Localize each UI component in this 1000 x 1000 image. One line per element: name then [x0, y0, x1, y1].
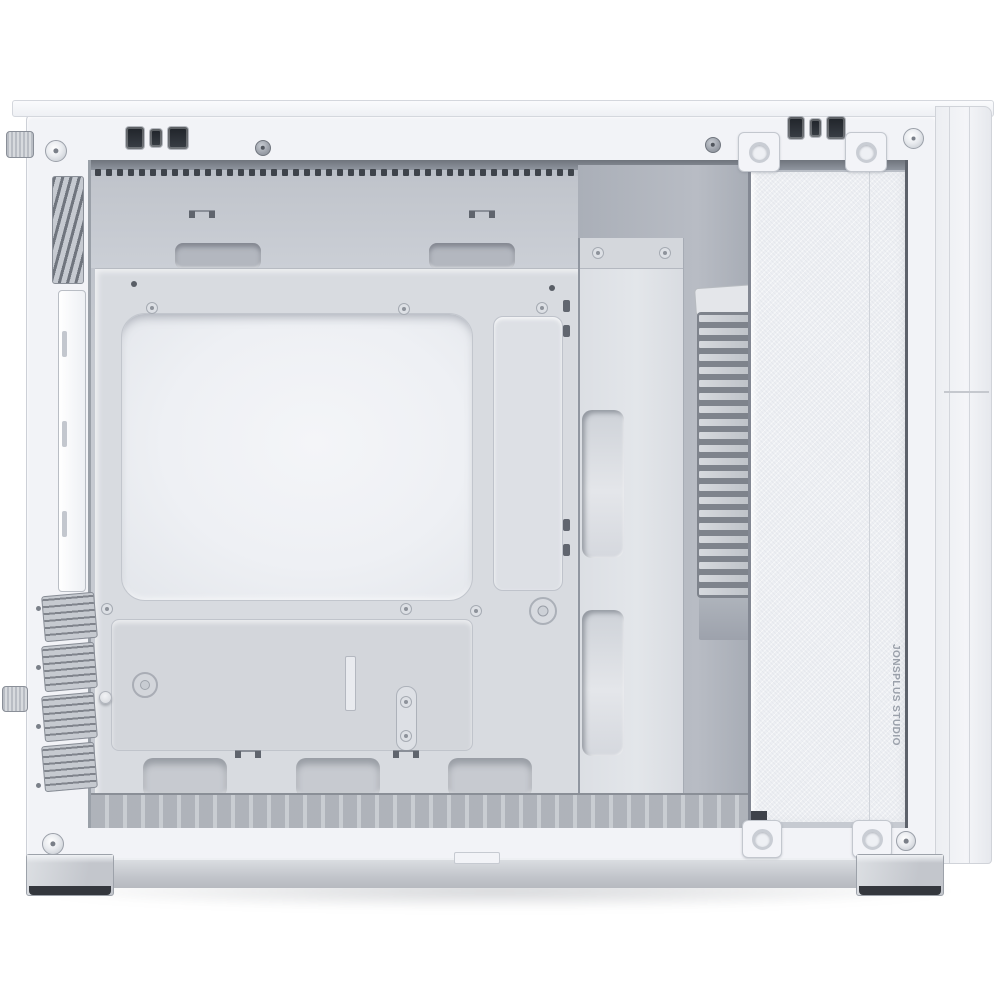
cable-column: [578, 238, 684, 818]
vent-dash: [150, 169, 156, 176]
top-latch-cutouts: [126, 127, 188, 149]
rail-hole: [36, 665, 41, 670]
vent-dash: [227, 169, 233, 176]
standoff-screw: [146, 302, 158, 314]
vent-dash: [304, 169, 310, 176]
screw: [255, 140, 271, 156]
vertical-slot: [345, 656, 356, 711]
cable-clip: [393, 750, 419, 760]
rail-hole: [36, 724, 41, 729]
corner-screw: [896, 831, 916, 851]
vent-dash: [557, 169, 563, 176]
vent-dash: [568, 169, 574, 176]
vent-dash: [161, 169, 167, 176]
vent-dash: [117, 169, 123, 176]
rear-thumbscrew: [2, 686, 28, 712]
rivet-dot: [131, 281, 137, 287]
vent-dash: [128, 169, 134, 176]
bottom-notch: [454, 852, 500, 864]
vent-dash: [106, 169, 112, 176]
vent-dash: [381, 169, 387, 176]
top-cutout: [429, 243, 515, 269]
io-bracket: [62, 511, 67, 537]
vent-dash: [249, 169, 255, 176]
screw: [592, 247, 604, 259]
vent-dash: [194, 169, 200, 176]
product-photo: JONSPLUS STUDIO: [0, 0, 1000, 1000]
latch-slot: [150, 129, 162, 147]
latch-slot: [827, 117, 845, 139]
vent-dash: [315, 169, 321, 176]
case-interior: JONSPLUS STUDIO: [88, 160, 908, 828]
rivet-dot: [549, 285, 555, 291]
vent-dash: [238, 169, 244, 176]
vent-dash: [183, 169, 189, 176]
vent-dash: [502, 169, 508, 176]
pci-cover: [41, 592, 98, 642]
vent-dash: [216, 169, 222, 176]
latch-slot: [126, 127, 144, 149]
tie-point: [563, 544, 570, 556]
vent-dash: [546, 169, 552, 176]
psu-mount-panel: [111, 619, 473, 751]
pci-cover: [41, 742, 98, 792]
brand-text: JONSPLUS STUDIO: [883, 644, 901, 802]
screw: [659, 247, 671, 259]
rear-io-cutout: [58, 290, 86, 592]
bottom-cutout: [143, 758, 227, 798]
mounting-tab: [845, 132, 887, 172]
pci-cover: [41, 692, 98, 742]
tab-hole: [752, 829, 773, 850]
tie-point: [563, 325, 570, 337]
latch-slot: [168, 127, 188, 149]
opening-edge: [905, 160, 908, 828]
latch-slot: [788, 117, 804, 139]
rail-hole: [36, 783, 41, 788]
vent-dash: [359, 169, 365, 176]
cable-slot-panel: [493, 316, 563, 591]
cable-pass-upper: [582, 410, 624, 558]
case-foot-left: [26, 854, 114, 896]
rear-exhaust-vent: [52, 176, 84, 284]
screw: [705, 137, 721, 153]
mounting-tab: [742, 820, 782, 858]
front-bezel-edge: [935, 106, 992, 864]
vent-dash: [458, 169, 464, 176]
io-bracket: [62, 331, 67, 357]
motherboard-tray: [95, 268, 578, 813]
bottom-cutout: [448, 758, 532, 798]
vent-dash: [95, 169, 101, 176]
vent-dash: [348, 169, 354, 176]
mounting-tab: [852, 820, 892, 858]
vent-dash: [337, 169, 343, 176]
vent-dash: [447, 169, 453, 176]
vent-dash: [326, 169, 332, 176]
bezel-seam: [949, 107, 950, 863]
latch-slot: [810, 119, 821, 137]
thumbscrew-hole: [529, 597, 557, 625]
standoff-screw: [400, 603, 412, 615]
rivet: [99, 691, 112, 704]
vent-dash: [425, 169, 431, 176]
rear-thumbscrew: [6, 131, 34, 158]
bottom-cutouts: [143, 758, 532, 798]
vent-dash: [282, 169, 288, 176]
bezel-seam: [944, 391, 989, 393]
standoff-screw: [101, 603, 113, 615]
vent-dash: [469, 169, 475, 176]
vent-dash: [172, 169, 178, 176]
vent-dash: [392, 169, 398, 176]
top-panel: [12, 100, 994, 117]
interior-floor: [91, 793, 751, 828]
vent-dash: [436, 169, 442, 176]
tab-hole: [856, 142, 877, 163]
vent-dash: [370, 169, 376, 176]
corner-screw: [903, 128, 924, 149]
cable-clip: [189, 210, 215, 220]
panel-seam: [869, 172, 870, 822]
pci-slot-area: [34, 594, 96, 800]
vent-dash: [535, 169, 541, 176]
vent-dash: [491, 169, 497, 176]
vent-dash: [524, 169, 530, 176]
screw: [400, 696, 412, 708]
vent-dash: [513, 169, 519, 176]
screw: [400, 730, 412, 742]
rail-hole: [36, 606, 41, 611]
bottom-cutout: [296, 758, 380, 798]
tie-point: [563, 519, 570, 531]
tab-hole: [862, 829, 883, 850]
front-panel-column: JONSPLUS STUDIO: [748, 172, 908, 822]
vent-dash: [205, 169, 211, 176]
cable-clip: [469, 210, 495, 220]
pci-cover: [41, 642, 98, 692]
vent-dash: [260, 169, 266, 176]
tab-hole: [749, 142, 770, 163]
cable-pass-lower: [582, 610, 624, 756]
cable-clip: [235, 750, 261, 760]
standoff-screw: [470, 605, 482, 617]
cable-grommet: [132, 672, 158, 698]
corner-screw: [42, 833, 64, 855]
tie-point: [563, 300, 570, 312]
pci-covers: [43, 594, 96, 800]
vent-dash: [139, 169, 145, 176]
corner-screw: [45, 140, 67, 162]
cpu-cooler-cutout: [121, 313, 473, 601]
mounting-tab: [738, 132, 780, 172]
vent-dash: [271, 169, 277, 176]
standoff-screw: [536, 302, 548, 314]
top-cutout: [175, 243, 261, 269]
case-foot-right: [856, 854, 944, 896]
vent-dash: [403, 169, 409, 176]
bezel-seam: [969, 107, 970, 863]
standoff-screw: [398, 303, 410, 315]
vent-dash: [480, 169, 486, 176]
vent-dash: [293, 169, 299, 176]
top-cutouts: [175, 243, 515, 269]
top-latch-cutouts: [788, 117, 845, 139]
io-bracket: [62, 421, 67, 447]
vent-dash: [414, 169, 420, 176]
